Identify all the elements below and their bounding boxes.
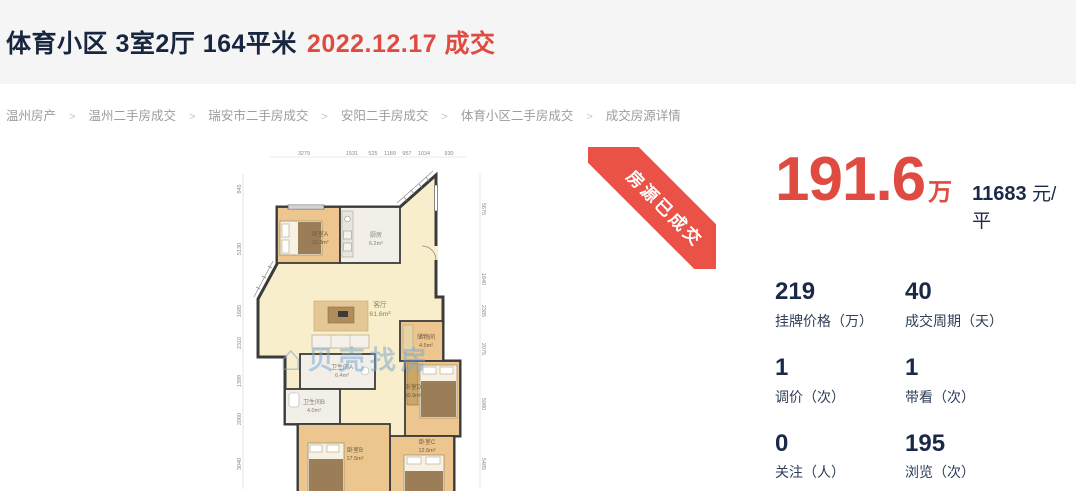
room-area-label: 10.9m² xyxy=(404,393,421,399)
dim-label: 930 xyxy=(444,151,453,157)
dim-label: 957 xyxy=(402,151,411,157)
dim-label: 2075 xyxy=(480,343,486,355)
floorplan-gallery[interactable]: 3279 1531 525 1189 957 1034 930 845 5130… xyxy=(230,147,716,491)
stat-value: 219 xyxy=(775,278,905,307)
breadcrumb-item-community-deals[interactable]: 体育小区二手房成交 xyxy=(461,109,574,123)
dim-label: 3279 xyxy=(298,151,310,157)
room-area-label: 10.3m² xyxy=(311,240,328,246)
room-area-label: 61.6m² xyxy=(369,311,391,318)
dim-label: 5980 xyxy=(480,398,486,410)
stat-label: 成交周期（天） xyxy=(905,311,1075,331)
dim-label: 5485 xyxy=(480,458,486,470)
stat-label: 挂牌价格（万） xyxy=(775,311,905,331)
unit-price: 11683 元/平 xyxy=(972,179,1075,233)
stat-label: 浏览（次） xyxy=(905,462,1075,482)
room-area-label: 6.2m² xyxy=(369,241,383,247)
breadcrumb-item-city-deals[interactable]: 温州二手房成交 xyxy=(88,109,176,123)
stat-label: 带看（次） xyxy=(905,387,1075,407)
breadcrumb-item-district-deals[interactable]: 瑞安市二手房成交 xyxy=(208,109,308,123)
dim-label: 1399 xyxy=(237,375,243,387)
dim-label: 1840 xyxy=(480,273,486,285)
dim-label: 2385 xyxy=(480,305,486,317)
stat-showings: 1 带看（次） xyxy=(905,354,1075,407)
stat-value: 195 xyxy=(905,430,1075,459)
dim-label: 525 xyxy=(368,151,377,157)
dim-label: 5675 xyxy=(480,203,486,215)
stat-listing-price: 219 挂牌价格（万） xyxy=(775,278,905,331)
deal-date: 2022.12.17 成交 xyxy=(307,30,496,58)
dim-label: 1034 xyxy=(418,151,430,157)
stat-value: 40 xyxy=(905,278,1075,307)
breadcrumb: 温州房产>温州二手房成交>瑞安市二手房成交>安阳二手房成交>体育小区二手房成交>… xyxy=(0,84,1076,124)
breadcrumb-separator: > xyxy=(321,111,327,123)
breadcrumb-item-area-deals[interactable]: 安阳二手房成交 xyxy=(341,109,429,123)
sold-ribbon: 房源已成交 xyxy=(588,147,716,269)
page: 体育小区 3室2厅 164平米2022.12.17 成交 温州房产>温州二手房成… xyxy=(0,0,1076,491)
breadcrumb-separator: > xyxy=(586,111,592,123)
dimension-labels-left: 845 5130 1685 2310 1399 2060 3040 xyxy=(237,184,243,470)
dim-label: 5130 xyxy=(237,243,243,255)
price-line: 191.6 万 11683 元/平 xyxy=(775,149,1075,233)
deal-stats-grid: 219 挂牌价格（万） 40 成交周期（天） 1 调价（次） 1 带看（次） 0 xyxy=(775,278,1075,482)
stat-value: 1 xyxy=(775,354,905,383)
dim-label: 2310 xyxy=(237,337,243,349)
room-label: 卫生间B xyxy=(303,398,325,406)
deal-price-unit: 万 xyxy=(928,172,952,207)
dimension-labels-top: 3279 1531 525 1189 957 1034 930 xyxy=(298,151,454,157)
page-title: 体育小区 3室2厅 164平米2022.12.17 成交 xyxy=(6,24,496,60)
room-label: 卧室B xyxy=(347,446,363,454)
stat-value: 0 xyxy=(775,430,905,459)
stat-label: 调价（次） xyxy=(775,387,905,407)
sold-ribbon-wrap: 房源已成交 xyxy=(588,147,716,269)
dim-label: 1685 xyxy=(237,305,243,317)
stat-followers: 0 关注（人） xyxy=(775,430,905,483)
room-label: 储物间 xyxy=(417,333,435,341)
room-area-label: 4.5m² xyxy=(419,343,433,349)
page-header: 体育小区 3室2厅 164平米2022.12.17 成交 xyxy=(0,0,1076,84)
deal-price: 191.6 xyxy=(775,149,925,211)
main-content: 3279 1531 525 1189 957 1034 930 845 5130… xyxy=(0,147,1076,491)
room-label: 客厅 xyxy=(373,300,387,309)
room-label: 厨房 xyxy=(370,231,382,239)
dimension-labels-right: 5675 1840 2385 2075 5980 5485 xyxy=(480,203,486,470)
breadcrumb-separator: > xyxy=(69,111,75,123)
stat-price-adjustments: 1 调价（次） xyxy=(775,354,905,407)
room-label: 卧室C xyxy=(419,438,436,446)
room-area-label: 17.5m² xyxy=(346,456,363,462)
listing-title: 体育小区 3室2厅 164平米 xyxy=(6,30,297,58)
room-label: 卧室D xyxy=(405,383,422,391)
dim-label: 1189 xyxy=(384,151,396,157)
breadcrumb-separator: > xyxy=(189,111,195,123)
room-area-label: 12.6m² xyxy=(418,448,435,454)
unit-price-value: 11683 xyxy=(972,183,1027,205)
dim-label: 2060 xyxy=(237,413,243,425)
room-area-label: 6.4m² xyxy=(335,373,349,379)
dim-label: 845 xyxy=(237,184,243,193)
dim-label: 3040 xyxy=(237,458,243,470)
breadcrumb-item-current: 成交房源详情 xyxy=(606,109,681,123)
stat-value: 1 xyxy=(905,354,1075,383)
room-area-label: 4.0m² xyxy=(307,408,321,414)
room-label: 卫生间A xyxy=(331,363,353,371)
breadcrumb-separator: > xyxy=(441,111,447,123)
deal-info-panel: 191.6 万 11683 元/平 219 挂牌价格（万） 40 成交周期（天）… xyxy=(775,149,1075,482)
dim-label: 1531 xyxy=(346,151,358,157)
breadcrumb-item-home[interactable]: 温州房产 xyxy=(6,109,56,123)
stat-deal-cycle: 40 成交周期（天） xyxy=(905,278,1075,331)
stat-label: 关注（人） xyxy=(775,462,905,482)
stat-views: 195 浏览（次） xyxy=(905,430,1075,483)
floorplan-image[interactable]: 3279 1531 525 1189 957 1034 930 845 5130… xyxy=(230,149,492,491)
room-label: 卧室A xyxy=(312,230,328,238)
